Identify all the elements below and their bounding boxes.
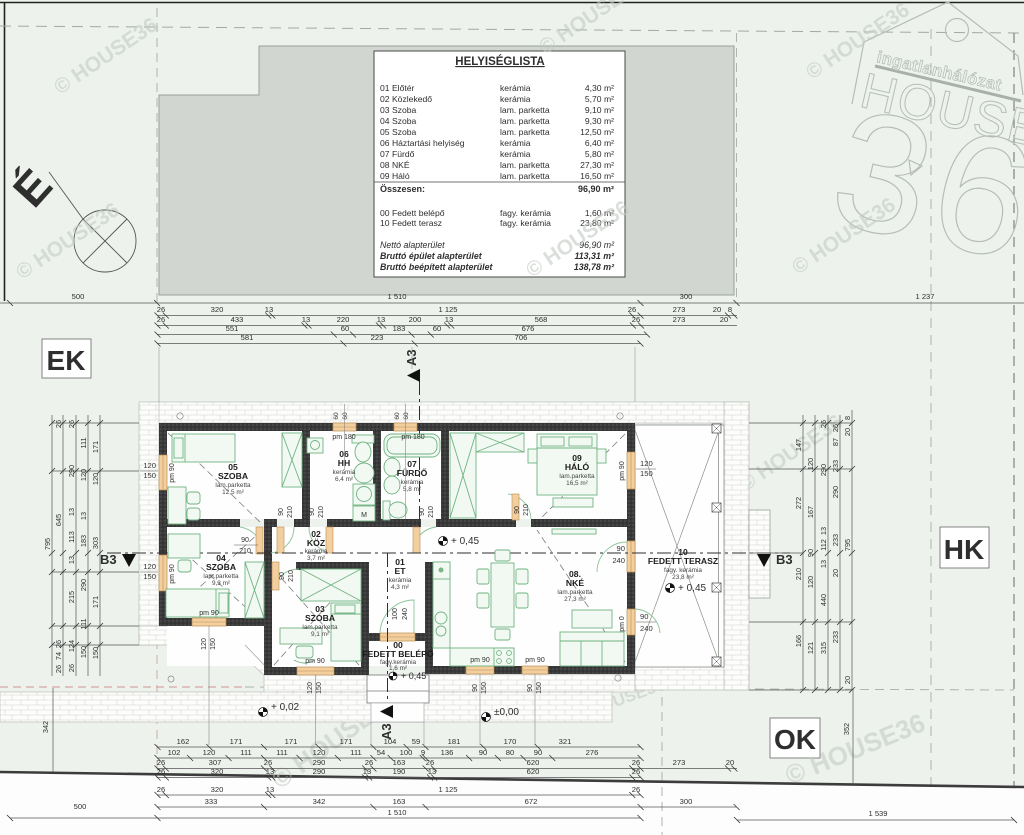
svg-text:pm 180: pm 180 bbox=[401, 434, 424, 441]
svg-text:13: 13 bbox=[363, 767, 371, 776]
svg-text:276: 276 bbox=[586, 748, 599, 757]
svg-text:kerámia: kerámia bbox=[500, 83, 531, 93]
svg-text:lam. parketta: lam. parketta bbox=[500, 116, 550, 126]
svg-text:120: 120 bbox=[79, 469, 88, 481]
svg-text:9,3 m²: 9,3 m² bbox=[212, 580, 230, 587]
svg-text:02 Közlekedő: 02 Közlekedő bbox=[380, 94, 432, 104]
svg-text:SZOBA: SZOBA bbox=[218, 471, 248, 481]
svg-text:26: 26 bbox=[632, 758, 640, 767]
svg-text:233: 233 bbox=[831, 534, 840, 546]
svg-text:60: 60 bbox=[341, 324, 349, 333]
svg-text:03 Szoba: 03 Szoba bbox=[380, 105, 417, 115]
svg-text:lam. parketta: lam. parketta bbox=[500, 105, 550, 115]
svg-text:300: 300 bbox=[680, 292, 693, 301]
svg-text:01 Előtér: 01 Előtér bbox=[380, 83, 415, 93]
svg-text:kerámia: kerámia bbox=[401, 479, 424, 486]
svg-text:90: 90 bbox=[640, 612, 648, 621]
svg-text:pm 90: pm 90 bbox=[619, 461, 626, 481]
svg-text:215: 215 bbox=[67, 591, 76, 603]
svg-text:05 Szoba: 05 Szoba bbox=[380, 127, 417, 137]
svg-text:kerámia: kerámia bbox=[333, 469, 356, 476]
svg-text:210: 210 bbox=[287, 506, 294, 518]
svg-text:20: 20 bbox=[726, 758, 734, 767]
svg-text:KÖZ: KÖZ bbox=[307, 538, 325, 548]
svg-text:112: 112 bbox=[819, 539, 828, 551]
svg-text:150: 150 bbox=[536, 682, 543, 694]
svg-text:13: 13 bbox=[445, 315, 453, 324]
svg-text:A3: A3 bbox=[404, 349, 419, 366]
svg-text:60: 60 bbox=[342, 412, 349, 420]
svg-text:+ 0,45: + 0,45 bbox=[451, 536, 480, 547]
svg-text:90: 90 bbox=[806, 549, 815, 557]
svg-text:706: 706 bbox=[515, 333, 528, 342]
svg-text:+ 0,45: + 0,45 bbox=[678, 583, 707, 594]
svg-text:120: 120 bbox=[143, 562, 156, 571]
svg-text:113: 113 bbox=[67, 531, 76, 543]
svg-text:90: 90 bbox=[279, 572, 286, 580]
svg-text:74: 74 bbox=[54, 652, 63, 660]
svg-text:pm 90: pm 90 bbox=[525, 657, 545, 664]
svg-text:645: 645 bbox=[54, 514, 63, 526]
svg-text:26: 26 bbox=[628, 305, 636, 314]
svg-text:620: 620 bbox=[527, 767, 540, 776]
svg-text:lam.parketta: lam.parketta bbox=[557, 589, 593, 596]
svg-text:00 Fedett belépő: 00 Fedett belépő bbox=[380, 208, 445, 218]
svg-text:FEDETT TERASZ: FEDETT TERASZ bbox=[648, 556, 718, 566]
svg-text:HÁLÓ: HÁLÓ bbox=[565, 461, 590, 472]
svg-text:pm 0: pm 0 bbox=[619, 616, 626, 632]
svg-text:8: 8 bbox=[843, 416, 852, 420]
svg-text:4,30 m²: 4,30 m² bbox=[585, 83, 614, 93]
svg-text:1 125: 1 125 bbox=[438, 785, 457, 794]
svg-text:kerámia: kerámia bbox=[305, 548, 328, 555]
svg-text:210: 210 bbox=[318, 506, 325, 518]
svg-text:210: 210 bbox=[794, 568, 803, 580]
svg-text:60: 60 bbox=[394, 412, 401, 420]
svg-text:1 510: 1 510 bbox=[387, 292, 406, 301]
svg-text:26: 26 bbox=[157, 767, 165, 776]
svg-text:210: 210 bbox=[288, 570, 295, 582]
svg-text:163: 163 bbox=[393, 758, 406, 767]
svg-text:307: 307 bbox=[209, 758, 222, 767]
svg-text:26: 26 bbox=[632, 315, 640, 324]
svg-text:60: 60 bbox=[403, 412, 410, 420]
svg-text:23,8 m²: 23,8 m² bbox=[672, 574, 694, 581]
svg-text:FÜRDŐ: FÜRDŐ bbox=[397, 467, 428, 478]
svg-text:26: 26 bbox=[632, 785, 640, 794]
svg-text:433: 433 bbox=[231, 315, 244, 324]
svg-text:16,50 m²: 16,50 m² bbox=[580, 171, 614, 181]
svg-text:150: 150 bbox=[640, 469, 653, 478]
svg-text:pm 90: pm 90 bbox=[199, 610, 219, 617]
svg-text:90: 90 bbox=[241, 537, 249, 544]
svg-text:B3: B3 bbox=[100, 552, 117, 567]
svg-text:120: 120 bbox=[307, 682, 314, 694]
svg-text:342: 342 bbox=[313, 797, 326, 806]
svg-text:13: 13 bbox=[819, 560, 828, 568]
svg-text:Összesen:: Összesen: bbox=[380, 184, 425, 194]
svg-text:kerámia: kerámia bbox=[500, 149, 531, 159]
svg-text:162: 162 bbox=[177, 737, 190, 746]
svg-text:HK: HK bbox=[944, 534, 984, 565]
svg-text:27,3 m²: 27,3 m² bbox=[564, 596, 586, 603]
svg-text:20: 20 bbox=[843, 676, 852, 684]
svg-text:96,90 m²: 96,90 m² bbox=[578, 184, 614, 194]
svg-text:26: 26 bbox=[157, 758, 165, 767]
svg-text:90: 90 bbox=[278, 508, 285, 516]
svg-text:120: 120 bbox=[201, 638, 208, 650]
svg-text:240: 240 bbox=[640, 624, 653, 633]
svg-text:290: 290 bbox=[831, 486, 840, 498]
svg-text:315: 315 bbox=[819, 642, 828, 654]
svg-text:150: 150 bbox=[481, 682, 488, 694]
svg-text:1 510: 1 510 bbox=[387, 808, 406, 817]
svg-text:SZOBA: SZOBA bbox=[206, 562, 236, 572]
svg-text:190: 190 bbox=[393, 767, 406, 776]
svg-text:B3: B3 bbox=[776, 552, 793, 567]
svg-text:676: 676 bbox=[522, 324, 535, 333]
svg-text:240: 240 bbox=[612, 556, 625, 565]
svg-text:120: 120 bbox=[91, 473, 100, 485]
svg-text:26: 26 bbox=[67, 664, 76, 672]
svg-text:1 539: 1 539 bbox=[868, 809, 887, 818]
svg-text:26: 26 bbox=[426, 758, 434, 767]
svg-text:kerámia: kerámia bbox=[500, 138, 531, 148]
svg-text:111: 111 bbox=[350, 748, 362, 757]
svg-text:6,4 m²: 6,4 m² bbox=[335, 476, 353, 483]
svg-text:pm 90: pm 90 bbox=[169, 564, 176, 584]
svg-text:3,7 m²: 3,7 m² bbox=[307, 555, 325, 562]
svg-text:59: 59 bbox=[412, 737, 420, 746]
svg-text:120: 120 bbox=[806, 576, 815, 588]
svg-text:4,3 m²: 4,3 m² bbox=[391, 584, 409, 591]
svg-text:6,40 m²: 6,40 m² bbox=[585, 138, 614, 148]
svg-text:13: 13 bbox=[377, 315, 385, 324]
svg-text:fagy. kerámia: fagy. kerámia bbox=[500, 208, 551, 218]
svg-text:171: 171 bbox=[91, 441, 100, 453]
svg-text:90: 90 bbox=[472, 684, 479, 692]
svg-text:13: 13 bbox=[266, 785, 274, 794]
svg-text:lam. parketta: lam. parketta bbox=[500, 160, 550, 170]
svg-text:26: 26 bbox=[54, 665, 63, 673]
svg-text:342: 342 bbox=[41, 721, 50, 733]
svg-text:16,5 m²: 16,5 m² bbox=[566, 480, 588, 487]
svg-text:290: 290 bbox=[67, 465, 76, 477]
svg-text:290: 290 bbox=[313, 767, 326, 776]
svg-text:lam.parketta: lam.parketta bbox=[302, 624, 338, 631]
svg-text:1 237: 1 237 bbox=[915, 292, 934, 301]
svg-text:lam. parketta: lam. parketta bbox=[500, 171, 550, 181]
svg-text:290: 290 bbox=[79, 579, 88, 591]
svg-text:150: 150 bbox=[91, 647, 100, 659]
svg-text:1 125: 1 125 bbox=[438, 305, 457, 314]
svg-text:320: 320 bbox=[211, 785, 224, 794]
svg-text:09 Háló: 09 Háló bbox=[380, 171, 410, 181]
svg-text:8: 8 bbox=[728, 305, 732, 314]
svg-text:111: 111 bbox=[240, 748, 252, 757]
svg-text:120: 120 bbox=[203, 748, 216, 757]
svg-text:150: 150 bbox=[316, 682, 323, 694]
svg-text:20: 20 bbox=[843, 428, 852, 436]
svg-text:321: 321 bbox=[559, 737, 572, 746]
svg-text:26: 26 bbox=[365, 758, 373, 767]
svg-text:100: 100 bbox=[392, 608, 399, 620]
svg-text:272: 272 bbox=[794, 497, 803, 509]
svg-text:60: 60 bbox=[333, 412, 340, 420]
svg-text:13: 13 bbox=[302, 315, 310, 324]
svg-text:20: 20 bbox=[831, 569, 840, 577]
svg-text:NKÉ: NKÉ bbox=[566, 578, 584, 588]
svg-text:90: 90 bbox=[514, 506, 521, 514]
svg-text:kerámia: kerámia bbox=[389, 577, 412, 584]
svg-text:120: 120 bbox=[143, 461, 156, 470]
svg-text:210: 210 bbox=[523, 504, 530, 516]
svg-text:lam. parketta: lam. parketta bbox=[500, 127, 550, 137]
svg-text:223: 223 bbox=[371, 333, 384, 342]
svg-text:120: 120 bbox=[313, 748, 326, 757]
svg-text:795: 795 bbox=[43, 538, 52, 550]
svg-text:+ 0,02: + 0,02 bbox=[271, 702, 300, 713]
svg-text:60: 60 bbox=[433, 324, 441, 333]
svg-text:163: 163 bbox=[393, 797, 406, 806]
svg-text:183: 183 bbox=[79, 535, 88, 547]
svg-text:EK: EK bbox=[47, 345, 86, 376]
svg-text:795: 795 bbox=[843, 539, 852, 551]
svg-text:FEDETT BELÉPŐ: FEDETT BELÉPŐ bbox=[362, 648, 433, 659]
svg-text:167: 167 bbox=[806, 506, 815, 518]
svg-text:87: 87 bbox=[831, 438, 840, 446]
svg-text:113,31 m²: 113,31 m² bbox=[575, 251, 616, 261]
svg-text:ET: ET bbox=[395, 566, 407, 576]
svg-text:200: 200 bbox=[409, 315, 422, 324]
svg-text:5,70 m²: 5,70 m² bbox=[585, 94, 614, 104]
svg-text:166: 166 bbox=[794, 635, 803, 647]
svg-text:150: 150 bbox=[143, 471, 156, 480]
svg-text:150: 150 bbox=[210, 638, 217, 650]
svg-text:26: 26 bbox=[157, 315, 165, 324]
svg-text:kerámia: kerámia bbox=[500, 94, 531, 104]
svg-text:10 Fedett terasz: 10 Fedett terasz bbox=[380, 218, 442, 228]
svg-text:90: 90 bbox=[617, 544, 625, 553]
svg-text:Nettó alapterület: Nettó alapterület bbox=[380, 240, 445, 250]
svg-text:171: 171 bbox=[340, 737, 353, 746]
svg-text:120: 120 bbox=[640, 459, 653, 468]
svg-text:303: 303 bbox=[91, 537, 100, 549]
svg-text:220: 220 bbox=[337, 315, 350, 324]
svg-text:320: 320 bbox=[211, 767, 224, 776]
svg-text:fagy. kerámia: fagy. kerámia bbox=[500, 218, 551, 228]
svg-text:273: 273 bbox=[673, 758, 686, 767]
svg-text:HH: HH bbox=[338, 458, 350, 468]
svg-text:171: 171 bbox=[285, 737, 298, 746]
svg-text:13: 13 bbox=[79, 512, 88, 520]
svg-text:Bruttó épület alapterület: Bruttó épület alapterület bbox=[380, 251, 483, 261]
svg-text:90: 90 bbox=[309, 508, 316, 516]
svg-text:121: 121 bbox=[806, 642, 815, 654]
svg-text:5,80 m²: 5,80 m² bbox=[585, 149, 614, 159]
svg-text:9: 9 bbox=[421, 748, 425, 757]
svg-text:pm 90: pm 90 bbox=[470, 657, 490, 664]
svg-text:171: 171 bbox=[91, 596, 100, 608]
svg-text:240: 240 bbox=[402, 608, 409, 620]
svg-text:90: 90 bbox=[479, 748, 487, 757]
svg-text:500: 500 bbox=[74, 802, 87, 811]
svg-text:210: 210 bbox=[428, 506, 435, 518]
svg-text:183: 183 bbox=[393, 324, 406, 333]
svg-text:pm 90: pm 90 bbox=[169, 463, 176, 483]
svg-text:100: 100 bbox=[400, 748, 413, 757]
svg-text:13: 13 bbox=[67, 556, 76, 564]
svg-text:07 Fürdő: 07 Fürdő bbox=[380, 149, 415, 159]
svg-text:352: 352 bbox=[842, 723, 851, 735]
svg-text:568: 568 bbox=[535, 315, 548, 324]
svg-text:27,30 m²: 27,30 m² bbox=[580, 160, 614, 170]
svg-text:102: 102 bbox=[168, 748, 181, 757]
svg-text:+ 0,45: + 0,45 bbox=[401, 671, 426, 681]
svg-text:440: 440 bbox=[819, 594, 828, 606]
svg-text:13: 13 bbox=[819, 527, 828, 535]
svg-text:551: 551 bbox=[226, 324, 239, 333]
svg-text:181: 181 bbox=[448, 737, 461, 746]
svg-text:150: 150 bbox=[143, 572, 156, 581]
svg-text:54: 54 bbox=[377, 748, 385, 757]
svg-text:26: 26 bbox=[264, 758, 272, 767]
svg-text:lam.parketta: lam.parketta bbox=[203, 573, 239, 580]
svg-text:pm 90: pm 90 bbox=[305, 658, 325, 665]
svg-text:lam.parketta: lam.parketta bbox=[559, 473, 595, 480]
svg-text:111: 111 bbox=[79, 437, 88, 448]
svg-text:210: 210 bbox=[239, 548, 251, 555]
svg-text:300: 300 bbox=[680, 797, 693, 806]
svg-text:581: 581 bbox=[241, 333, 254, 342]
svg-text:9,10 m²: 9,10 m² bbox=[585, 105, 614, 115]
svg-text:HELYISÉGLISTA: HELYISÉGLISTA bbox=[455, 55, 544, 68]
svg-text:147: 147 bbox=[794, 439, 803, 451]
svg-text:±0,00: ±0,00 bbox=[494, 707, 519, 718]
svg-text:120: 120 bbox=[806, 458, 815, 470]
svg-text:9,1 m²: 9,1 m² bbox=[311, 631, 329, 638]
svg-text:26: 26 bbox=[157, 785, 165, 794]
svg-text:111: 111 bbox=[276, 748, 288, 757]
svg-text:500: 500 bbox=[72, 292, 85, 301]
svg-text:13: 13 bbox=[265, 305, 273, 314]
svg-text:150: 150 bbox=[79, 646, 88, 658]
svg-text:26: 26 bbox=[831, 424, 840, 432]
svg-text:M: M bbox=[361, 512, 367, 519]
svg-text:273: 273 bbox=[673, 305, 686, 314]
svg-text:138,78 m²: 138,78 m² bbox=[574, 262, 615, 272]
svg-text:90: 90 bbox=[527, 684, 534, 692]
svg-text:26: 26 bbox=[157, 305, 165, 314]
svg-text:fagy. kerámia: fagy. kerámia bbox=[664, 567, 702, 574]
svg-text:290: 290 bbox=[313, 758, 326, 767]
svg-text:104: 104 bbox=[384, 737, 397, 746]
svg-text:12,5 m²: 12,5 m² bbox=[222, 489, 244, 496]
svg-text:80: 80 bbox=[506, 748, 514, 757]
svg-text:pm 180: pm 180 bbox=[332, 434, 355, 441]
svg-text:SZOBA: SZOBA bbox=[305, 613, 335, 623]
svg-text:333: 333 bbox=[205, 797, 218, 806]
svg-text:320: 320 bbox=[211, 305, 224, 314]
svg-text:lam.parketta: lam.parketta bbox=[215, 482, 251, 489]
svg-text:20: 20 bbox=[713, 305, 721, 314]
svg-text:90: 90 bbox=[419, 508, 426, 516]
svg-text:08 NKÉ: 08 NKÉ bbox=[380, 160, 410, 170]
svg-text:13: 13 bbox=[428, 767, 436, 776]
svg-text:620: 620 bbox=[527, 758, 540, 767]
svg-text:13: 13 bbox=[266, 767, 274, 776]
svg-text:233: 233 bbox=[831, 631, 840, 643]
svg-text:04 Szoba: 04 Szoba bbox=[380, 116, 417, 126]
svg-text:26: 26 bbox=[632, 767, 640, 776]
svg-text:06 Háztartási helyiség: 06 Háztartási helyiség bbox=[380, 138, 465, 148]
svg-text:672: 672 bbox=[525, 797, 538, 806]
svg-text:170: 170 bbox=[504, 737, 517, 746]
svg-text:13: 13 bbox=[67, 508, 76, 516]
svg-text:171: 171 bbox=[230, 737, 243, 746]
svg-text:12,50 m²: 12,50 m² bbox=[580, 127, 614, 137]
svg-text:9,30 m²: 9,30 m² bbox=[585, 116, 614, 126]
svg-text:90: 90 bbox=[534, 748, 542, 757]
svg-text:136: 136 bbox=[441, 748, 454, 757]
svg-text:273: 273 bbox=[673, 315, 686, 324]
svg-text:20: 20 bbox=[720, 315, 728, 324]
svg-text:Bruttó beépített alapterület: Bruttó beépített alapterület bbox=[380, 262, 493, 272]
